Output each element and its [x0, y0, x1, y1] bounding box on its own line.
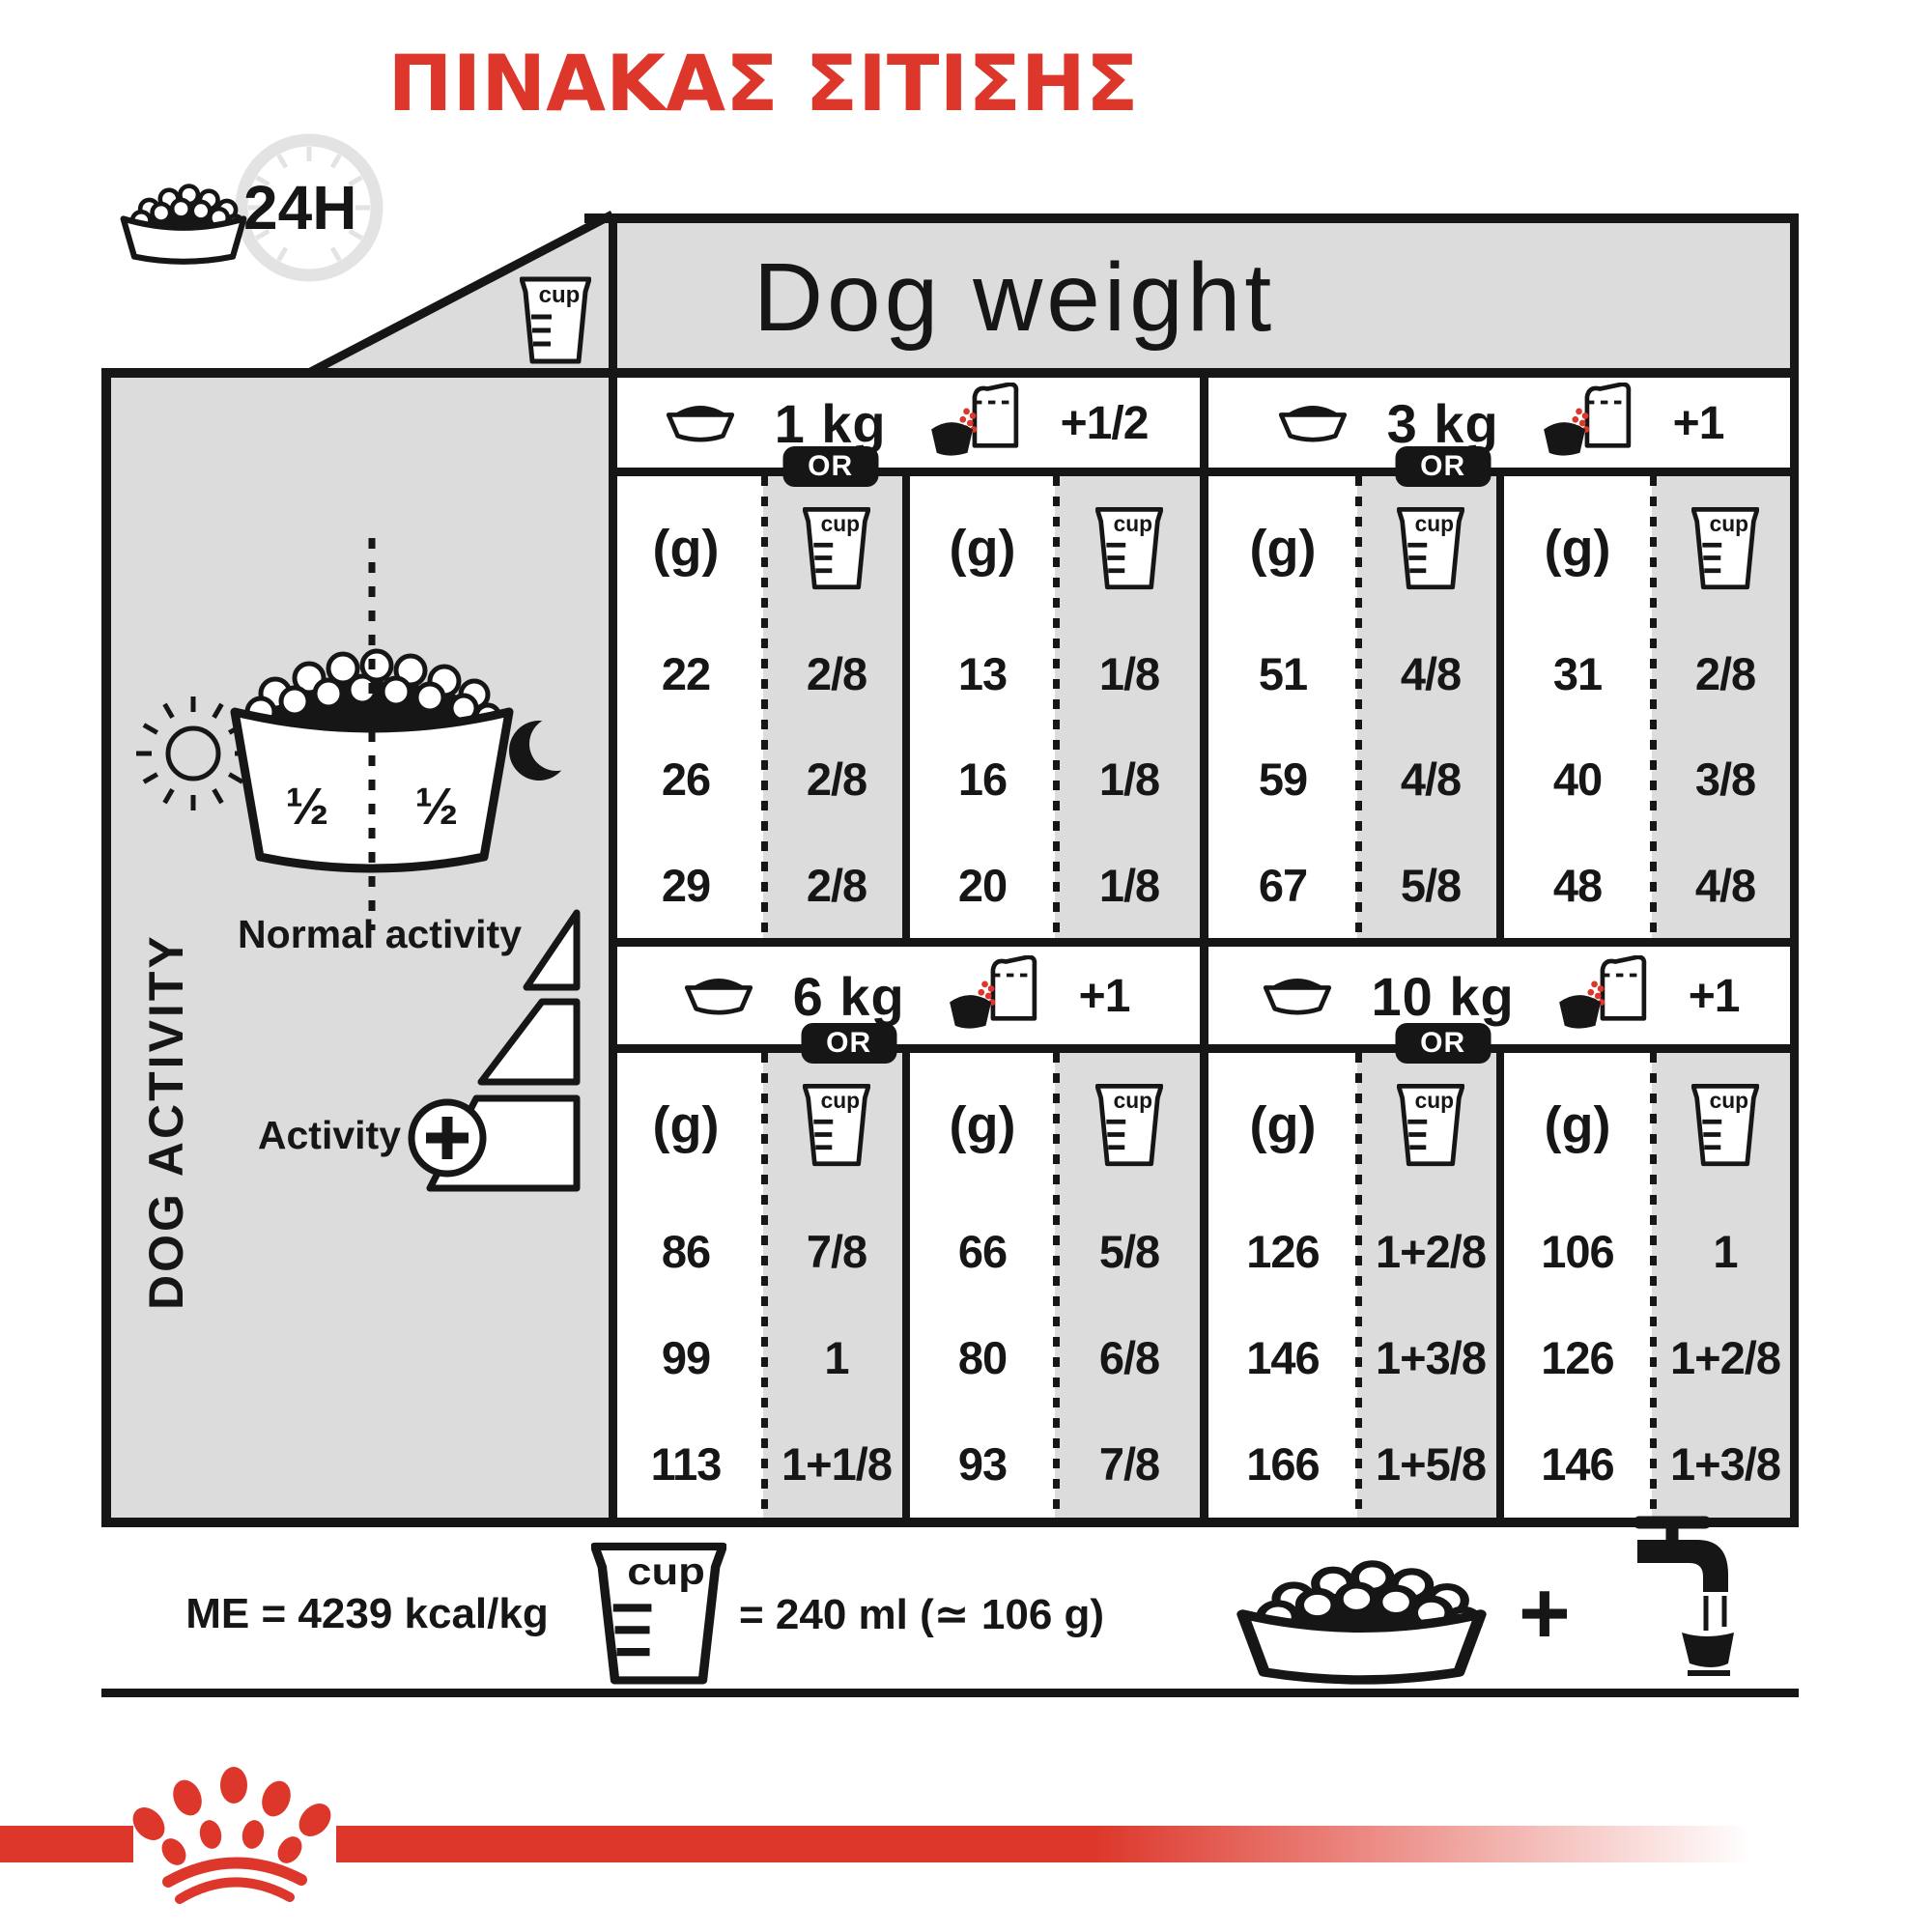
wet-add-label: +1 — [1079, 970, 1130, 1023]
col-1kg-wet-cup: cup 1/8 1/8 1/8 — [1057, 476, 1202, 938]
dog-activity-illustration: ½ ½ — [101, 372, 609, 1526]
weight-header-10kg: 10 kg OR +1 — [1208, 948, 1790, 1044]
col-10kg-dry-grams: (g) 126 146 166 — [1210, 1053, 1355, 1518]
wet-pouch-bowl-icon — [1536, 383, 1636, 464]
svg-text:cup: cup — [1710, 511, 1748, 536]
wet-add-label: +1 — [1673, 397, 1724, 450]
col-6kg-wet-grams: (g) 66 80 93 — [910, 1053, 1055, 1518]
weight-label: 6 kg — [793, 965, 905, 1028]
col-1kg-wet-grams: (g) 13 16 20 — [910, 476, 1055, 938]
grams-header: (g) — [653, 1095, 720, 1155]
me-kcal-label: ME = 4239 kcal/kg — [184, 1590, 551, 1638]
svg-text:cup: cup — [1114, 511, 1152, 536]
grams-header: (g) — [950, 1095, 1016, 1155]
water-tap-icon — [1589, 1515, 1744, 1689]
svg-text:cup: cup — [821, 1088, 860, 1113]
activity-ramp-small — [526, 913, 577, 987]
dry-bowl-icon — [663, 398, 738, 448]
measuring-cup-icon: cup — [1691, 506, 1759, 591]
col-1kg-dry-cup: cup 2/8 2/8 2/8 — [764, 476, 909, 938]
weight-header-1kg: 1 kg OR +1/2 — [611, 379, 1200, 468]
col-3kg-wet-grams: (g) 31 40 48 — [1505, 476, 1650, 938]
col-10kg-wet-cup: cup 1 1+2/8 1+3/8 — [1653, 1053, 1798, 1518]
grams-header: (g) — [1250, 1095, 1317, 1155]
royal-canin-paw-logo — [124, 1764, 340, 1911]
svg-text:cup: cup — [821, 511, 860, 536]
col-1kg-dry-grams: (g) 22 26 29 — [613, 476, 758, 938]
col-6kg-dry-grams: (g) 86 99 113 — [613, 1053, 758, 1518]
weight-label: 10 kg — [1372, 965, 1515, 1028]
grams-header: (g) — [1545, 519, 1611, 579]
activity-ramp-medium — [481, 1002, 577, 1082]
dry-bowl-icon — [681, 971, 756, 1021]
brand-band-right — [336, 1826, 1795, 1862]
svg-text:½: ½ — [414, 778, 458, 836]
svg-text:cup: cup — [539, 282, 581, 308]
svg-text:cup: cup — [1114, 1088, 1152, 1113]
weight-header-6kg: 6 kg OR +1 — [611, 948, 1200, 1044]
measuring-cup-icon-large: cup — [591, 1542, 726, 1687]
measuring-cup-icon: cup — [1691, 1083, 1759, 1168]
weight-header-3kg: 3 kg OR +1 — [1208, 379, 1790, 468]
dog-weight-title: Dog weight — [638, 230, 1391, 365]
svg-text:cup: cup — [1415, 511, 1454, 536]
col-3kg-dry-grams: (g) 51 59 67 — [1210, 476, 1355, 938]
moon-icon — [509, 717, 583, 781]
kibble-bowl-icon — [1219, 1538, 1504, 1690]
svg-text:cup: cup — [1710, 1088, 1748, 1113]
col-10kg-dry-cup: cup 1+2/8 1+3/8 1+5/8 — [1358, 1053, 1503, 1518]
svg-text:cup: cup — [627, 1550, 705, 1592]
grams-header: (g) — [1250, 519, 1317, 579]
col-10kg-wet-grams: (g) 106 126 146 — [1505, 1053, 1650, 1518]
grams-header: (g) — [1545, 1095, 1611, 1155]
plus-circle-icon — [412, 1102, 483, 1174]
page-title: ΠΙΝΑΚΑΣ ΣΙΤΙΣΗΣ — [290, 39, 1236, 128]
measuring-cup-icon: cup — [1095, 1083, 1163, 1168]
brand-band-left — [0, 1826, 133, 1862]
wet-add-label: +1/2 — [1061, 397, 1149, 450]
wet-pouch-bowl-icon — [923, 383, 1024, 464]
kibble-bowl-icon — [111, 169, 256, 269]
col-6kg-wet-cup: cup 5/8 6/8 7/8 — [1057, 1053, 1202, 1518]
grams-header: (g) — [950, 519, 1016, 579]
svg-text:½: ½ — [285, 778, 328, 836]
wet-pouch-bowl-icon — [942, 955, 1042, 1037]
svg-text:cup: cup — [1415, 1088, 1454, 1113]
wet-add-label: +1 — [1689, 970, 1740, 1023]
col-6kg-dry-cup: cup 7/8 1 1+1/8 — [764, 1053, 909, 1518]
measuring-cup-icon: cup — [1397, 1083, 1464, 1168]
wet-pouch-bowl-icon — [1551, 955, 1652, 1037]
measuring-cup-icon: cup — [1397, 506, 1464, 591]
plus-sign: + — [1519, 1563, 1571, 1664]
cup-equivalence-label: = 240 ml (≃ 106 g) — [739, 1590, 1104, 1639]
measuring-cup-icon: cup — [803, 506, 870, 591]
split-bowl-icon: ½ ½ — [235, 538, 509, 930]
col-3kg-dry-cup: cup 4/8 4/8 5/8 — [1358, 476, 1503, 938]
measuring-cup-icon: cup — [1095, 506, 1163, 591]
measuring-cup-icon: cup — [520, 272, 591, 369]
grams-header: (g) — [653, 519, 720, 579]
measuring-cup-icon: cup — [803, 1083, 870, 1168]
col-3kg-wet-cup: cup 2/8 3/8 4/8 — [1653, 476, 1798, 938]
dry-bowl-icon — [1260, 971, 1335, 1021]
24h-label: 24H — [243, 172, 356, 243]
dry-bowl-icon — [1275, 398, 1350, 448]
